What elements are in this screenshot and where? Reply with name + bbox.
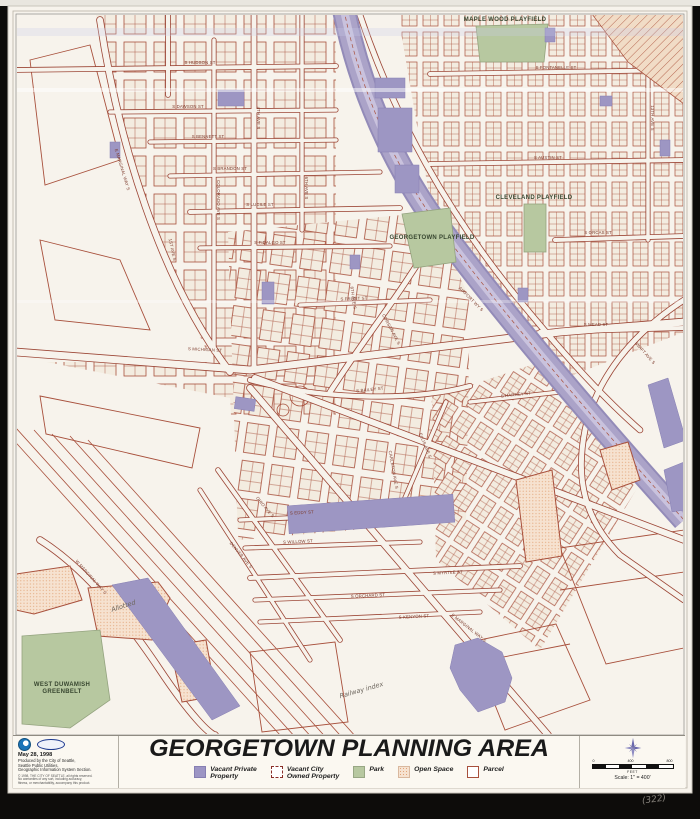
street-label: COLORADO AVE S [216, 180, 221, 220]
legend-swatch [398, 766, 410, 778]
street-label: S FONTANELLE ST [536, 65, 577, 70]
map-sheet-footer: May 28, 1998 Produced by the City of Sea… [13, 735, 685, 788]
legend-label: Vacant City Owned Property [287, 766, 340, 781]
map-title: GEORGETOWN PLANNING AREA [149, 737, 549, 762]
street-label: S LUCILE ST [246, 202, 274, 207]
legend: Vacant Private Property Vacant City Owne… [194, 766, 504, 781]
area-label: GEORGETOWN PLAYFIELD [389, 235, 474, 241]
scale-block: 0400800 FEET Scale: 1" = 400' [579, 736, 685, 788]
street-label: S MEAD ST [584, 322, 609, 327]
credit-lines: Produced by the City of Seattle,Seattle … [18, 759, 114, 773]
scanned-map-image: E MARGINAL WAY SCOLORADO AVE S1ST AVE S4… [0, 0, 700, 819]
legend-item: Park [353, 766, 384, 778]
area-label: GREENBELT [42, 689, 81, 695]
street-label: 6TH AVE S [304, 177, 309, 200]
title-block: GEORGETOWN PLANNING AREA Vacant Private … [119, 736, 579, 788]
production-info: May 28, 1998 Produced by the City of Sea… [13, 736, 119, 788]
street-label: S FIDALGO ST [254, 240, 286, 245]
legend-item: Parcel [467, 766, 503, 778]
street-label: S FRONT ST [340, 296, 367, 302]
legend-label: Vacant Private Property [210, 766, 257, 781]
compass-rose-icon [621, 737, 645, 759]
seattle-public-utilities-logo [37, 739, 65, 750]
scale-unit: FEET [627, 770, 638, 774]
area-label: CLEVELAND PLAYFIELD [496, 195, 573, 201]
legend-label: Open Space [414, 766, 453, 773]
legend-swatch [353, 766, 365, 778]
street-label: S AUSTIN ST [534, 155, 562, 160]
street-label: S ORCAS ST [584, 230, 612, 235]
copyright-fine-print: © 1998, THE CITY OF SEATTLE, all rights … [18, 775, 114, 786]
street-label: 13TH AVE S [650, 105, 655, 130]
street-label: 4TH AVE S [256, 107, 261, 130]
legend-swatch [194, 766, 206, 778]
street-label: S DAWSON ST [172, 104, 204, 109]
legend-item: Open Space [398, 766, 453, 778]
street-label: S BENNETT ST [192, 134, 225, 139]
legend-label: Parcel [483, 766, 503, 773]
legend-item: Vacant City Owned Property [271, 766, 340, 781]
scale-text: Scale: 1" = 400' [614, 775, 650, 781]
area-label: MAPLE WOOD PLAYFIELD [464, 17, 547, 23]
legend-label: Park [369, 766, 384, 773]
street-label: S HUDSON ST [184, 60, 215, 65]
legend-item: Vacant Private Property [194, 766, 257, 781]
scanner-edge-strip [0, 0, 700, 6]
city-of-seattle-logo [18, 738, 31, 751]
legend-swatch [467, 766, 479, 778]
scale-bar: 0400800 FEET Scale: 1" = 400' [593, 759, 673, 781]
street-label: S BRANDON ST [213, 166, 247, 171]
area-label: WEST DUWAMISH [34, 682, 90, 688]
legend-swatch [271, 766, 283, 778]
